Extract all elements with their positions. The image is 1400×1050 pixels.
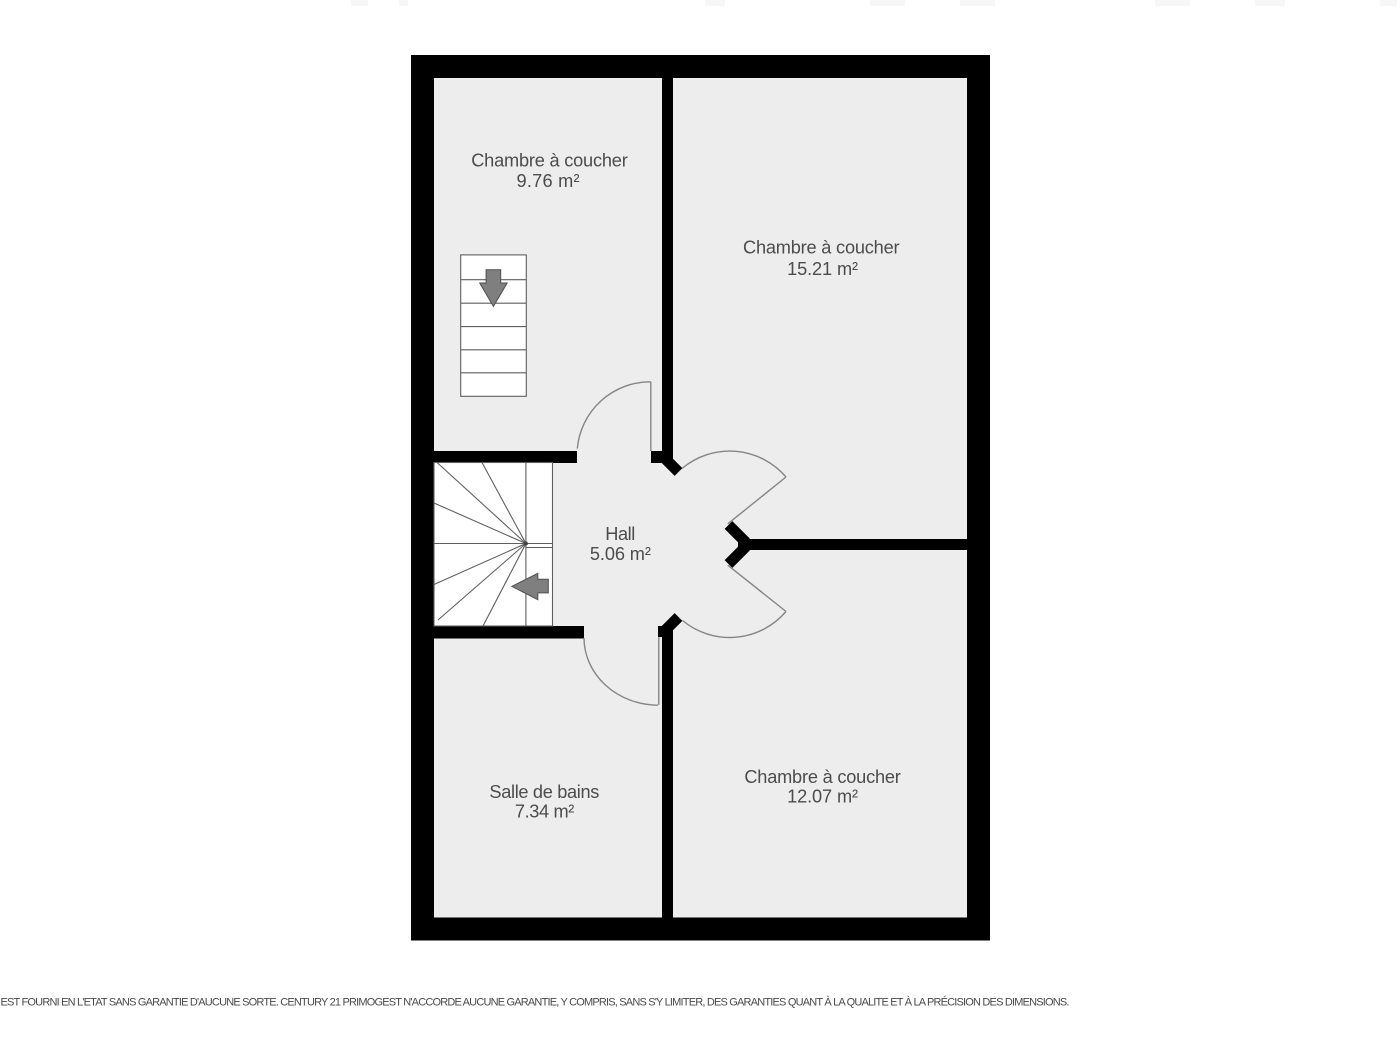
svg-text:Hall: Hall <box>605 524 635 544</box>
svg-text:Chambre à coucher: Chambre à coucher <box>471 150 628 170</box>
svg-text:5.06 m²: 5.06 m² <box>590 544 651 564</box>
svg-text:15.21 m²: 15.21 m² <box>787 259 858 279</box>
svg-text:12.07 m²: 12.07 m² <box>787 787 858 807</box>
svg-text:7.34 m²: 7.34 m² <box>515 802 575 822</box>
svg-text:9.76 m²: 9.76 m² <box>517 171 580 191</box>
svg-text:EST FOURNI EN L'ETAT SANS GARA: EST FOURNI EN L'ETAT SANS GARANTIE D'AUC… <box>1 995 1070 1008</box>
svg-text:Chambre à coucher: Chambre à coucher <box>744 767 901 787</box>
svg-text:Chambre à coucher: Chambre à coucher <box>743 238 900 258</box>
svg-text:Salle de bains: Salle de bains <box>489 782 599 802</box>
